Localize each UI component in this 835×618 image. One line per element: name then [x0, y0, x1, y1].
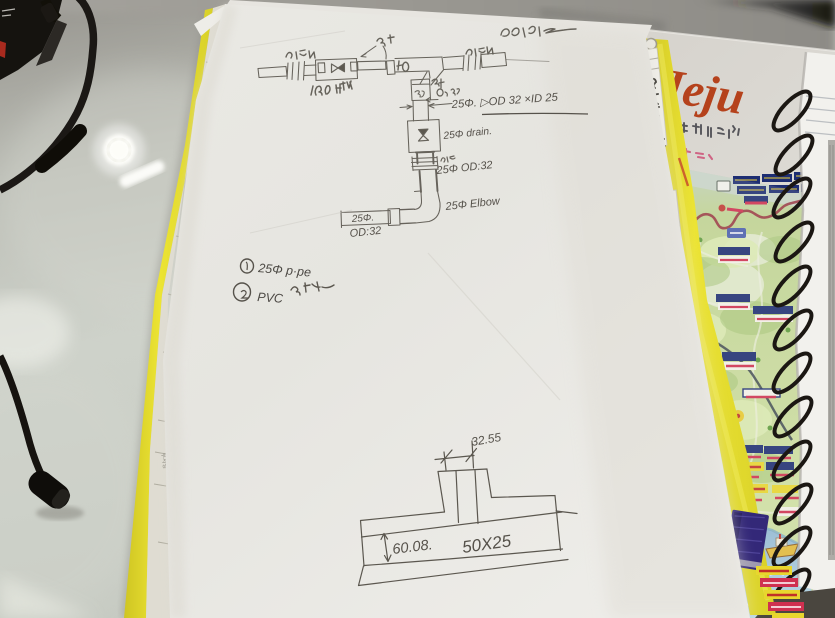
- svg-text:25Φ.: 25Φ.: [350, 212, 374, 225]
- svg-text:PVC: PVC: [257, 290, 285, 306]
